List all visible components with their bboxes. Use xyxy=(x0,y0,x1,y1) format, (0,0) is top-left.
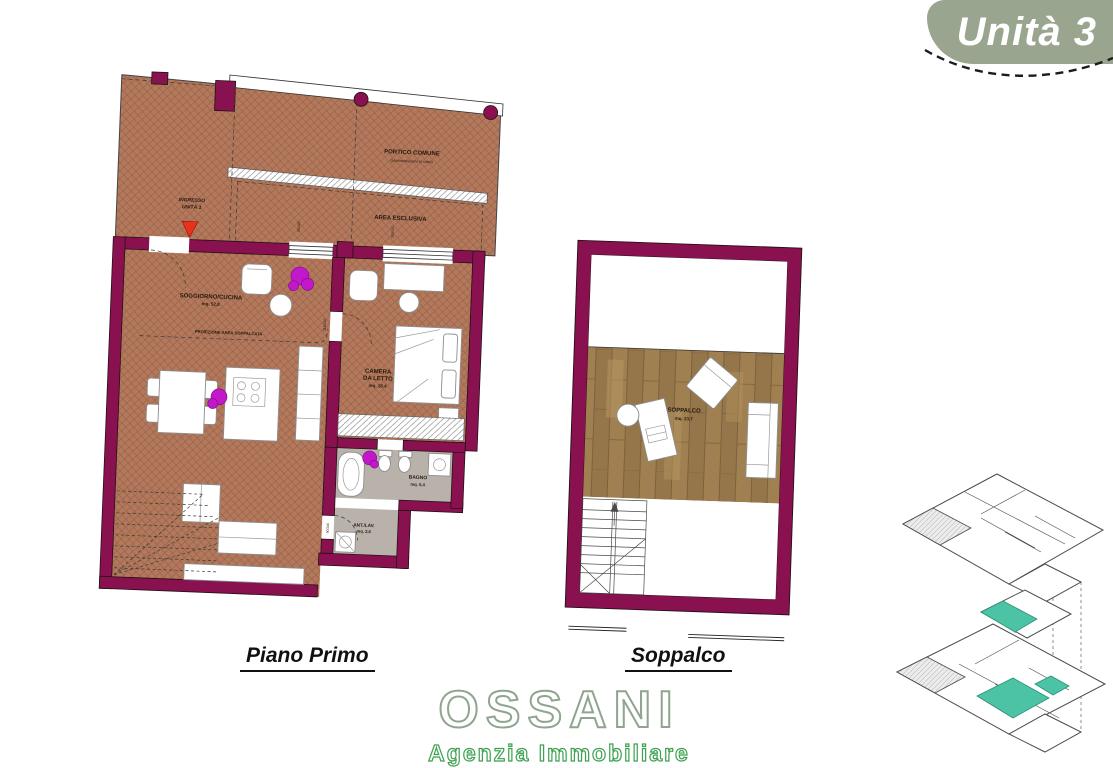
wall-partition xyxy=(331,257,345,311)
piano-primo-plan: PORTICO COMUNE (pavimentazione in cotto)… xyxy=(88,74,518,664)
wall-antilav-east xyxy=(396,510,410,568)
agency-logo-name: OSSANI xyxy=(428,684,690,736)
floorplan-sheet: Unità 3 xyxy=(0,0,1113,768)
wall-partition xyxy=(322,447,337,515)
dim-label: 90/240 xyxy=(326,523,330,534)
entry-opening xyxy=(149,236,190,254)
badge-dashed-arc xyxy=(921,30,1113,90)
shower xyxy=(428,453,451,476)
camera-area: mq. 18,4 xyxy=(368,383,387,389)
dim-label: 205/427 xyxy=(391,225,395,238)
dim-label: 90/429 xyxy=(297,221,301,232)
wall-stub xyxy=(152,72,168,85)
agency-logo-tagline: Agenzia Immobiliare xyxy=(428,740,690,767)
wall-pier xyxy=(337,241,354,258)
bagno-label: BAGNO xyxy=(409,475,428,482)
wall-bagno-north xyxy=(403,440,465,452)
stairs xyxy=(580,499,647,595)
desk-chair xyxy=(617,404,640,427)
armchair xyxy=(349,270,378,301)
sofa xyxy=(746,402,779,478)
ingresso-label-1: INGRESSO xyxy=(179,197,206,204)
axon-top-floor xyxy=(903,474,1103,602)
dim-label: 115/247 xyxy=(323,318,328,331)
washing-machine xyxy=(335,532,356,553)
side-table xyxy=(269,294,292,317)
kitchen-counter xyxy=(295,346,323,441)
axon-bottom-floor xyxy=(897,624,1105,752)
agency-logo: OSSANI Agenzia Immobiliare xyxy=(428,684,690,767)
portico-pillar xyxy=(215,80,236,111)
soppalco-label: SOPPALCO xyxy=(667,408,701,415)
antilav-label: ANT./LAV. xyxy=(353,522,374,528)
wall-partition xyxy=(321,539,334,553)
plan-title-piano-primo: Piano Primo xyxy=(240,644,375,672)
plan-title-soppalco: Soppalco xyxy=(625,644,732,672)
axonometric-key-diagram xyxy=(885,462,1113,768)
plan-title-piano-primo-text: Piano Primo xyxy=(246,644,369,667)
plan-title-soppalco-text: Soppalco xyxy=(631,644,726,667)
soppalco-area: mq. 23,7 xyxy=(675,416,694,422)
armchair xyxy=(241,264,272,295)
bathtub xyxy=(337,452,365,497)
portico-column xyxy=(483,105,498,120)
soggiorno-area: mq. 52,8 xyxy=(202,301,221,307)
antilav-area: mq. 2,6 xyxy=(356,528,371,534)
ingresso-label-2: UNITÀ 3 xyxy=(182,203,202,211)
camera-label-1: CAMERA xyxy=(365,369,392,376)
wardrobe xyxy=(338,414,465,441)
edge-ticks xyxy=(568,626,626,631)
soppalco-plan: SOPPALCO mq. 23,7 xyxy=(545,232,815,662)
void-over-living xyxy=(588,255,787,354)
camera-label-2: DA LETTO xyxy=(363,376,393,383)
kitchen-island xyxy=(223,367,280,441)
bagno-area: mq. 5,4 xyxy=(410,482,425,488)
portico-column xyxy=(354,92,369,107)
wall-bagno-north xyxy=(333,437,377,449)
edge-ticks xyxy=(688,634,784,640)
